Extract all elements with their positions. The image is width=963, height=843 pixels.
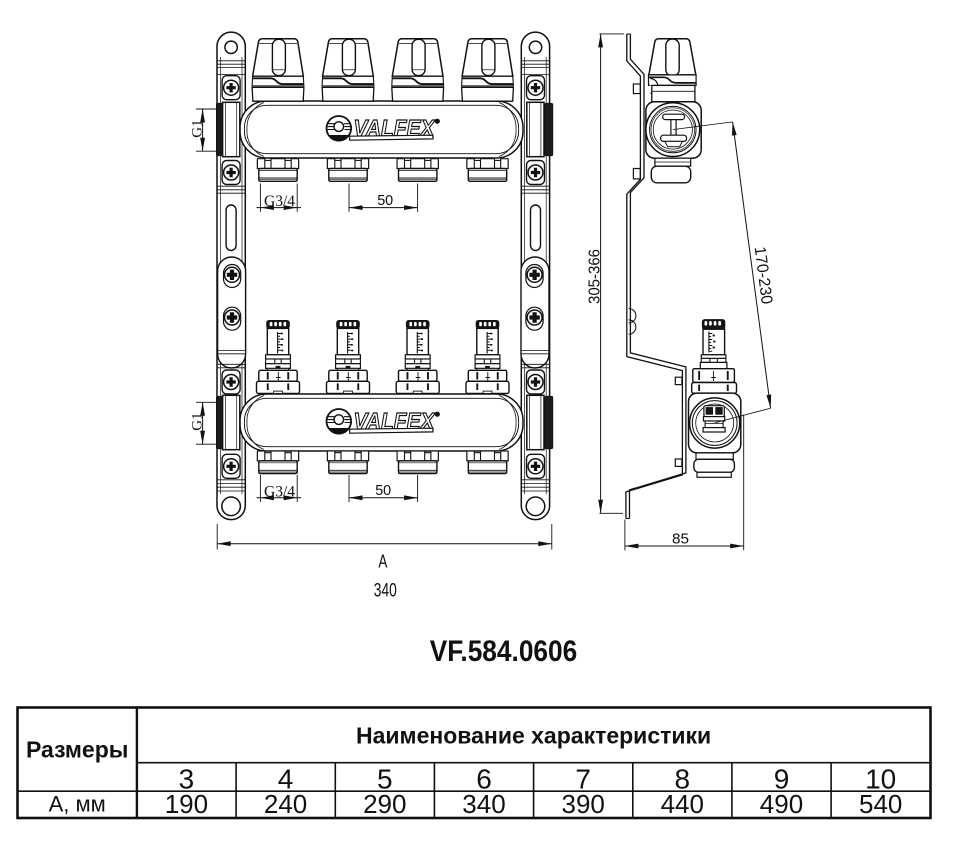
svg-text:440: 440 xyxy=(661,789,704,819)
svg-text:А, мм: А, мм xyxy=(49,792,106,817)
svg-text:490: 490 xyxy=(760,789,803,819)
svg-text:190: 190 xyxy=(165,789,208,819)
svg-text:85: 85 xyxy=(672,531,689,548)
svg-text:G1: G1 xyxy=(190,412,206,430)
svg-text:290: 290 xyxy=(363,789,406,819)
svg-text:G3/4: G3/4 xyxy=(264,483,295,500)
svg-text:340: 340 xyxy=(462,789,505,819)
svg-text:Размеры: Размеры xyxy=(26,737,128,763)
svg-text:240: 240 xyxy=(264,789,307,819)
svg-text:305-366: 305-366 xyxy=(586,249,603,304)
svg-text:340: 340 xyxy=(374,579,397,601)
svg-text:G1: G1 xyxy=(190,119,206,137)
svg-text:VF.584.0606: VF.584.0606 xyxy=(430,635,578,668)
svg-text:540: 540 xyxy=(859,789,902,819)
svg-text:50: 50 xyxy=(377,192,393,209)
svg-text:A: A xyxy=(378,551,387,572)
svg-text:Наименование характеристики: Наименование характеристики xyxy=(356,723,711,749)
svg-text:390: 390 xyxy=(562,789,605,819)
svg-text:G3/4: G3/4 xyxy=(264,193,295,210)
svg-text:50: 50 xyxy=(375,482,391,499)
